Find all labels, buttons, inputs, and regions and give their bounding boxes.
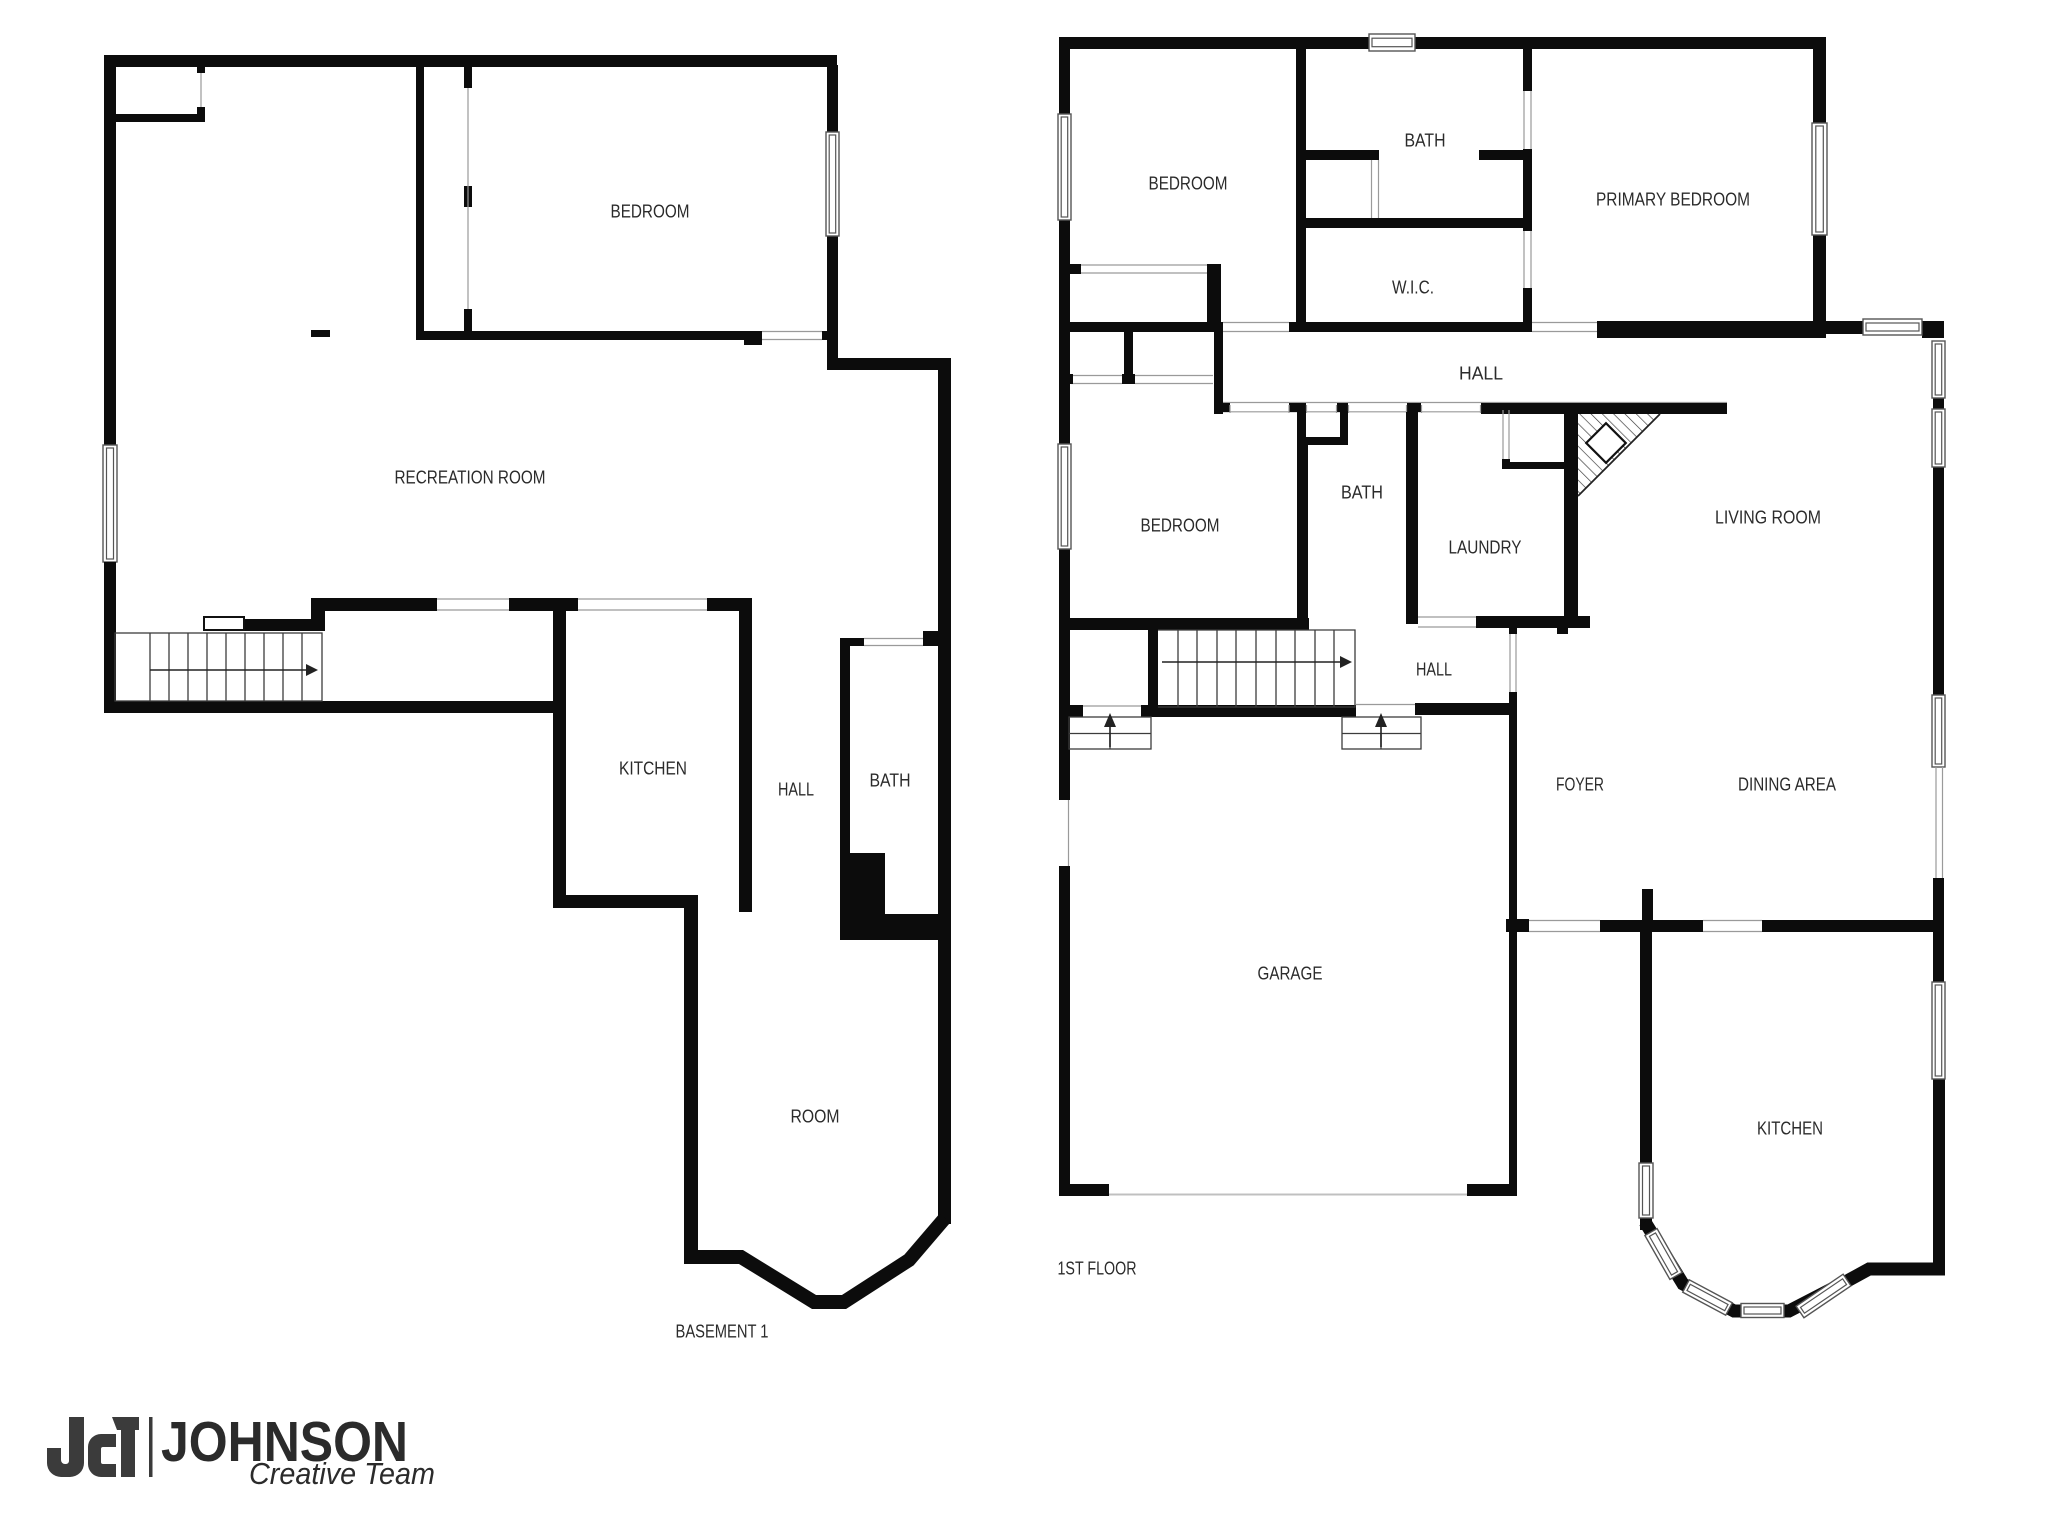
svg-text:PRIMARY BEDROOM: PRIMARY BEDROOM <box>1596 189 1750 209</box>
svg-text:BASEMENT 1: BASEMENT 1 <box>676 1321 769 1341</box>
svg-text:HALL: HALL <box>1459 363 1503 383</box>
svg-text:KITCHEN: KITCHEN <box>1757 1118 1823 1138</box>
svg-text:BEDROOM: BEDROOM <box>611 201 690 221</box>
svg-text:W.I.C.: W.I.C. <box>1392 277 1434 297</box>
svg-text:Creative Team: Creative Team <box>249 1456 435 1491</box>
svg-text:BEDROOM: BEDROOM <box>1149 173 1228 193</box>
svg-text:DINING AREA: DINING AREA <box>1738 774 1836 794</box>
svg-text:KITCHEN: KITCHEN <box>619 758 687 778</box>
svg-text:LIVING ROOM: LIVING ROOM <box>1715 507 1821 527</box>
svg-text:ROOM: ROOM <box>791 1106 840 1126</box>
svg-text:BATH: BATH <box>870 770 911 790</box>
svg-text:GARAGE: GARAGE <box>1258 963 1323 983</box>
svg-text:LAUNDRY: LAUNDRY <box>1449 537 1522 557</box>
svg-text:BATH: BATH <box>1405 130 1446 150</box>
svg-text:BATH: BATH <box>1341 482 1383 502</box>
svg-text:HALL: HALL <box>778 779 814 799</box>
svg-text:RECREATION ROOM: RECREATION ROOM <box>395 467 546 487</box>
svg-text:1ST FLOOR: 1ST FLOOR <box>1058 1258 1137 1278</box>
svg-text:HALL: HALL <box>1416 659 1452 679</box>
svg-text:BEDROOM: BEDROOM <box>1141 515 1220 535</box>
svg-text:FOYER: FOYER <box>1556 774 1604 794</box>
